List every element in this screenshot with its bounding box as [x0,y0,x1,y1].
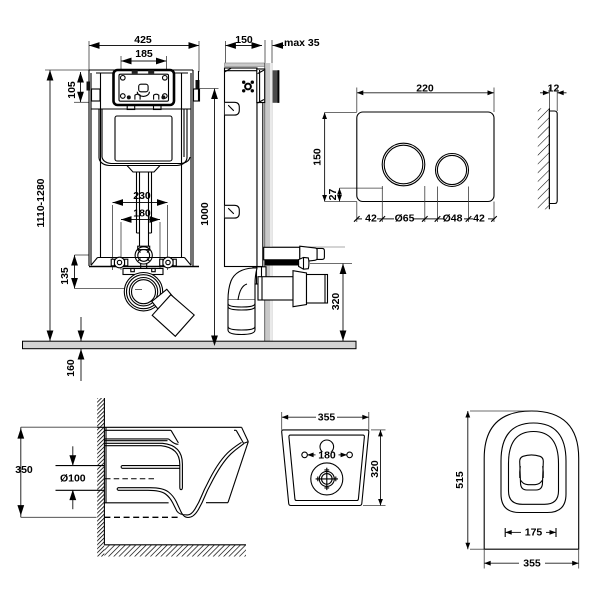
svg-text:1110-1280: 1110-1280 [35,178,47,227]
svg-text:175: 175 [525,527,543,539]
svg-text:180: 180 [318,450,336,462]
svg-text:515: 515 [454,471,466,489]
svg-text:105: 105 [66,81,78,99]
svg-text:320: 320 [330,293,342,311]
svg-text:150: 150 [312,148,324,166]
svg-text:1000: 1000 [199,202,211,226]
svg-text:135: 135 [59,267,71,285]
svg-text:320: 320 [369,460,381,478]
svg-text:350: 350 [15,464,33,476]
svg-text:42: 42 [473,213,485,225]
svg-text:160: 160 [65,359,77,377]
svg-text:Ø65: Ø65 [395,213,415,225]
svg-text:Ø100: Ø100 [60,473,86,485]
svg-text:max 35: max 35 [284,37,320,49]
svg-text:220: 220 [416,83,434,95]
svg-text:150: 150 [235,34,253,46]
svg-text:42: 42 [365,213,377,225]
svg-text:425: 425 [134,34,152,46]
svg-text:185: 185 [135,48,153,60]
svg-text:355: 355 [523,558,541,570]
svg-text:355: 355 [318,412,336,424]
svg-text:Ø48: Ø48 [443,213,463,225]
